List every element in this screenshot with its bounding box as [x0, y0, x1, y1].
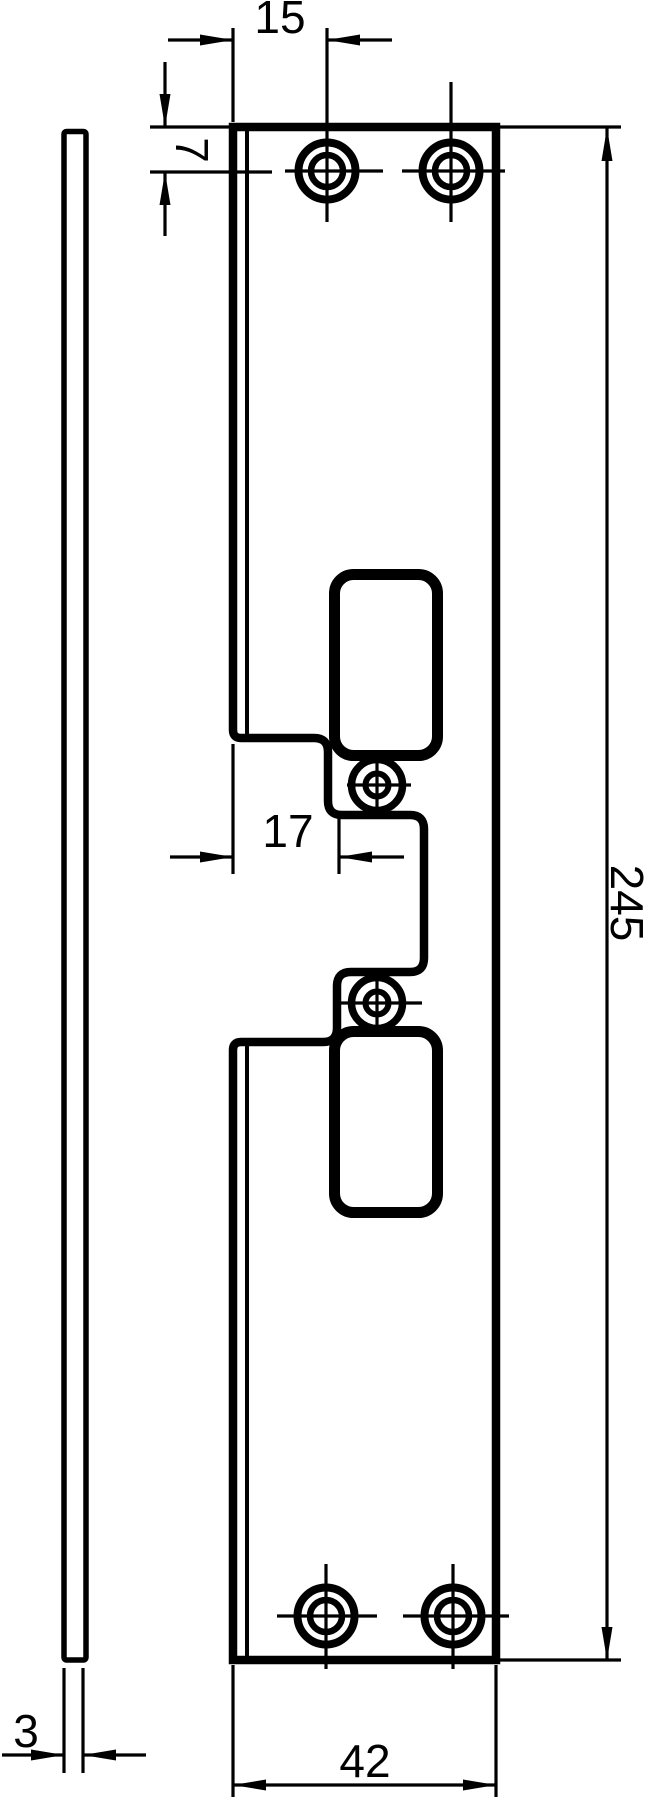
dim-label-7: 7 [169, 127, 215, 173]
technical-drawing: 15 7 17 245 42 3 [0, 0, 648, 1800]
front-plate-outline [233, 127, 496, 1660]
center-hole-upper [347, 752, 411, 814]
side-view-outline [64, 132, 86, 1661]
screw-hole-top-right [402, 82, 505, 222]
screw-hole-bottom-left [277, 1564, 377, 1669]
latch-cutout-upper [335, 575, 438, 756]
drawing-geometry [0, 0, 648, 1800]
dim-label-3: 3 [0, 1708, 52, 1754]
dim-label-245: 245 [604, 843, 648, 963]
center-hole-lower [334, 977, 422, 1029]
dim-label-17: 17 [233, 808, 343, 854]
latch-cutout-lower [335, 1032, 438, 1213]
dim-label-42: 42 [233, 1738, 497, 1784]
dim-label-15: 15 [233, 0, 327, 40]
